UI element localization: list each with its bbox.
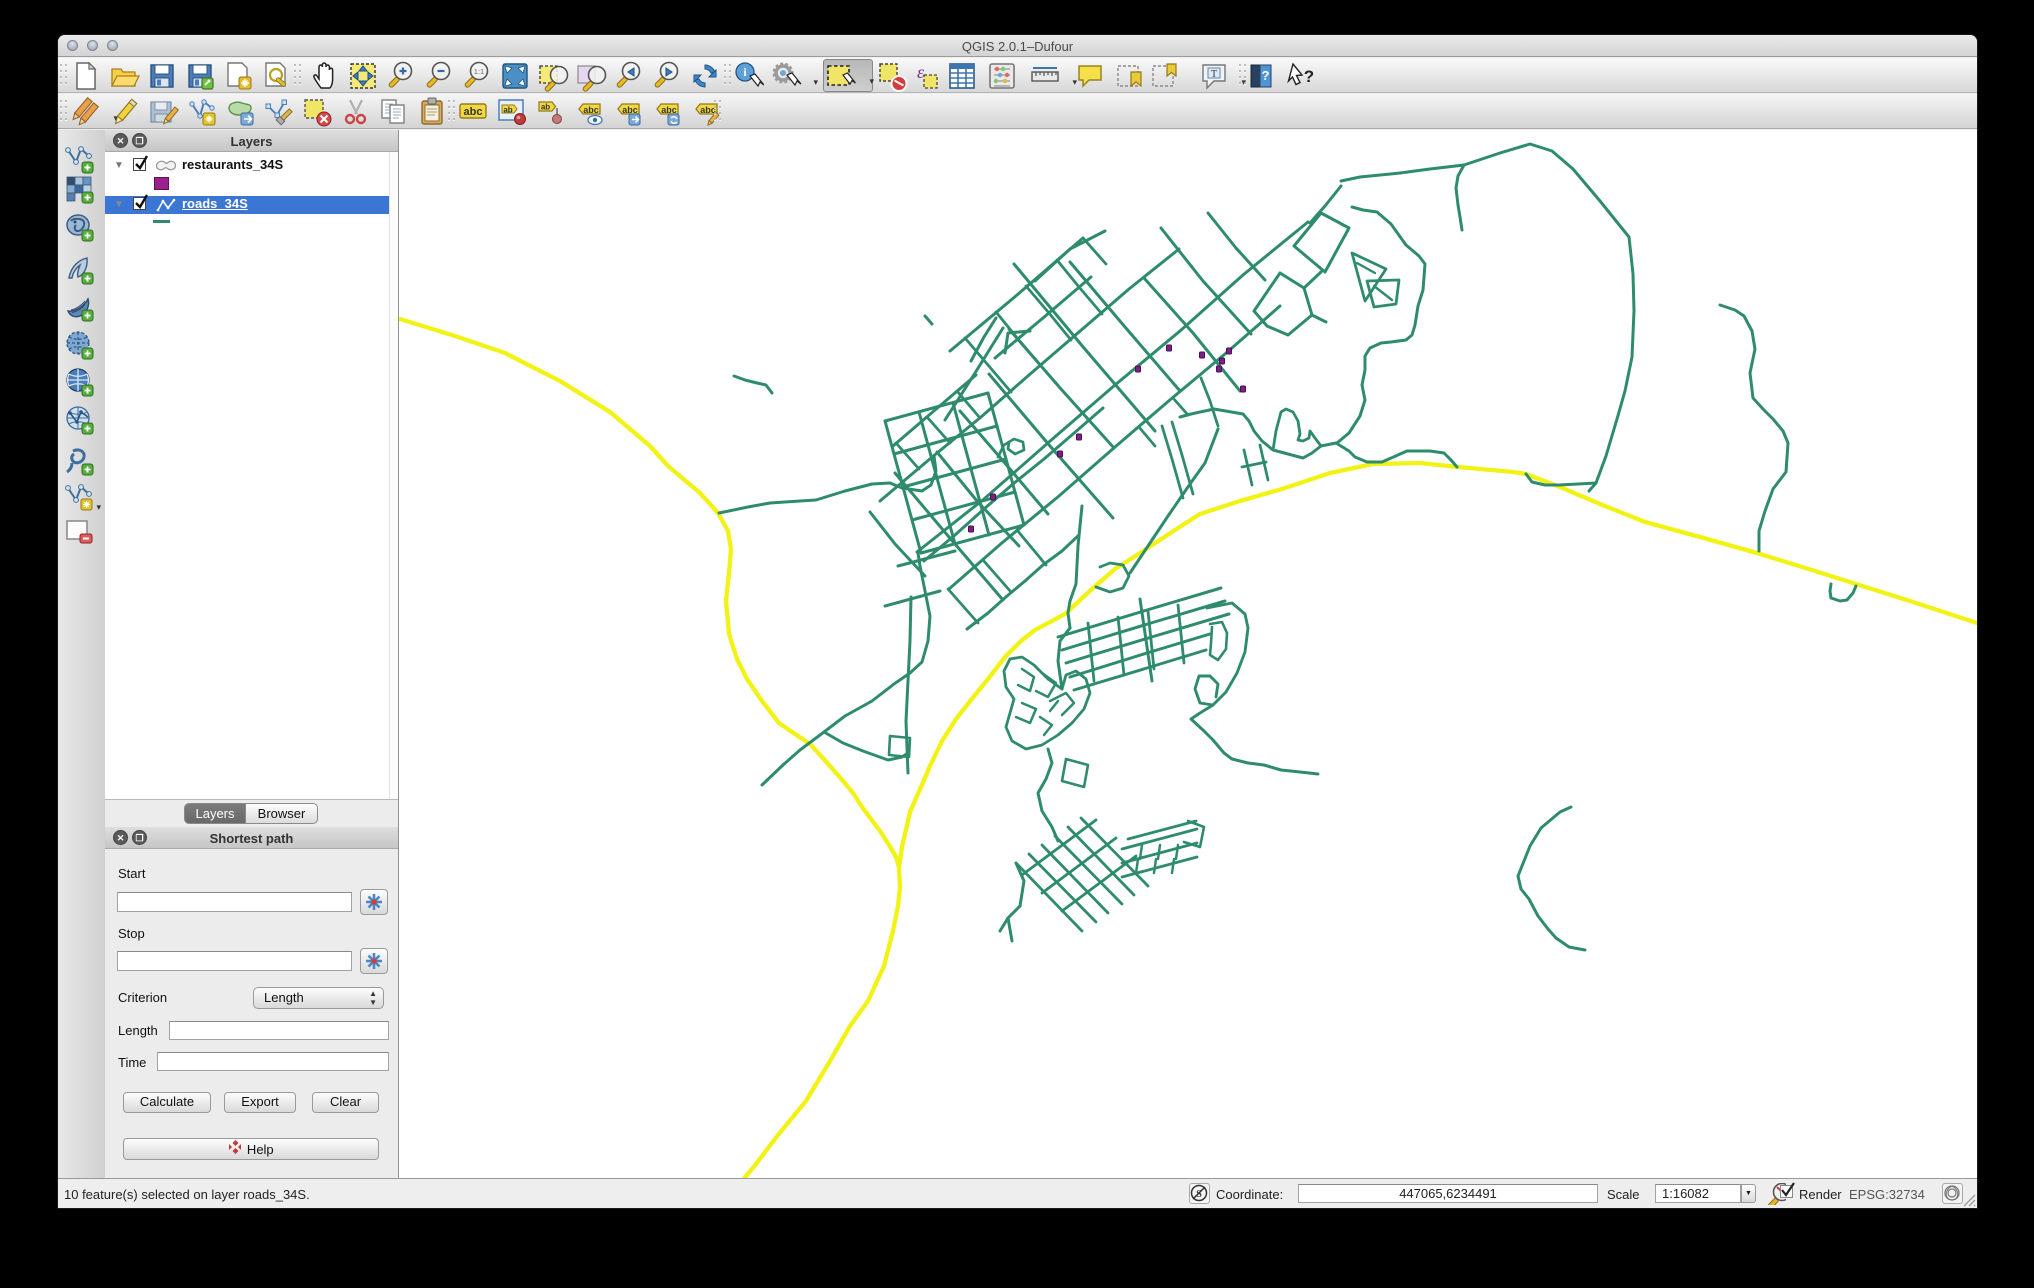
svg-text:ab: ab <box>541 103 550 112</box>
svg-text:?: ? <box>1304 67 1314 86</box>
svg-text:?: ? <box>1262 68 1270 83</box>
svg-text:ab: ab <box>503 106 512 115</box>
svg-text:abc: abc <box>583 105 599 115</box>
svg-text:T: T <box>1211 69 1217 80</box>
svg-text:1:1: 1:1 <box>474 67 484 76</box>
svg-text:abc: abc <box>464 106 483 118</box>
